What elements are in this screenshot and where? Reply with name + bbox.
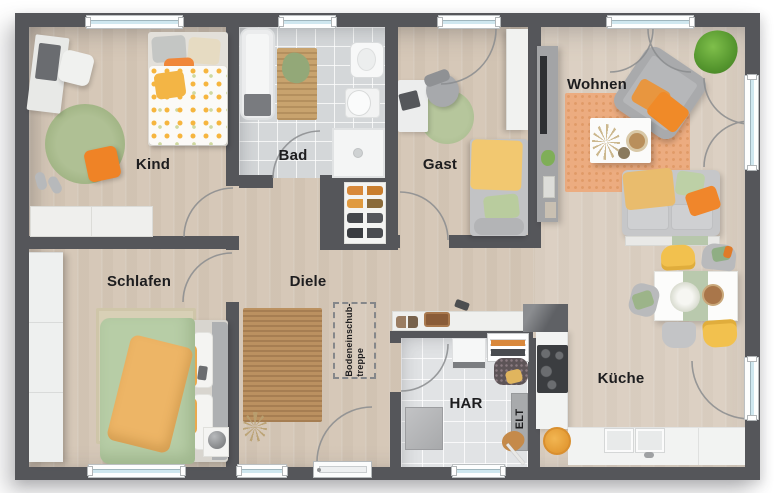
room-label-diele: Diele: [290, 274, 327, 291]
terrace-door: [744, 75, 759, 170]
floor-plan: Kind Bad Gast Wohnen Schlafen Diele HAR …: [0, 0, 775, 493]
room-label-elt: ELT: [514, 409, 526, 430]
room-label-bad: Bad: [279, 148, 308, 165]
window: [607, 15, 694, 29]
kitchen-door: [744, 357, 759, 420]
window: [237, 464, 287, 478]
entrance-door-panel: [319, 466, 367, 473]
room-label-gast: Gast: [423, 157, 457, 174]
room-label-wohnen: Wohnen: [567, 77, 627, 94]
room-label-har: HAR: [449, 396, 482, 413]
entrance-door: [313, 461, 372, 478]
door-handle: [317, 468, 321, 472]
window: [452, 464, 505, 478]
room-label-kueche: Küche: [598, 371, 645, 388]
attic-hatch-label: Bodeneinschub- treppe: [344, 303, 367, 376]
attic-hatch-label-line2: treppe: [355, 303, 366, 376]
attic-hatch-label-line1: Bodeneinschub-: [344, 303, 355, 376]
door-swing-arcs: [0, 0, 775, 493]
window: [438, 15, 500, 29]
room-label-kind: Kind: [136, 157, 170, 174]
window: [279, 15, 336, 29]
window: [88, 464, 185, 478]
room-label-schlafen: Schlafen: [107, 274, 171, 291]
window: [86, 15, 183, 29]
